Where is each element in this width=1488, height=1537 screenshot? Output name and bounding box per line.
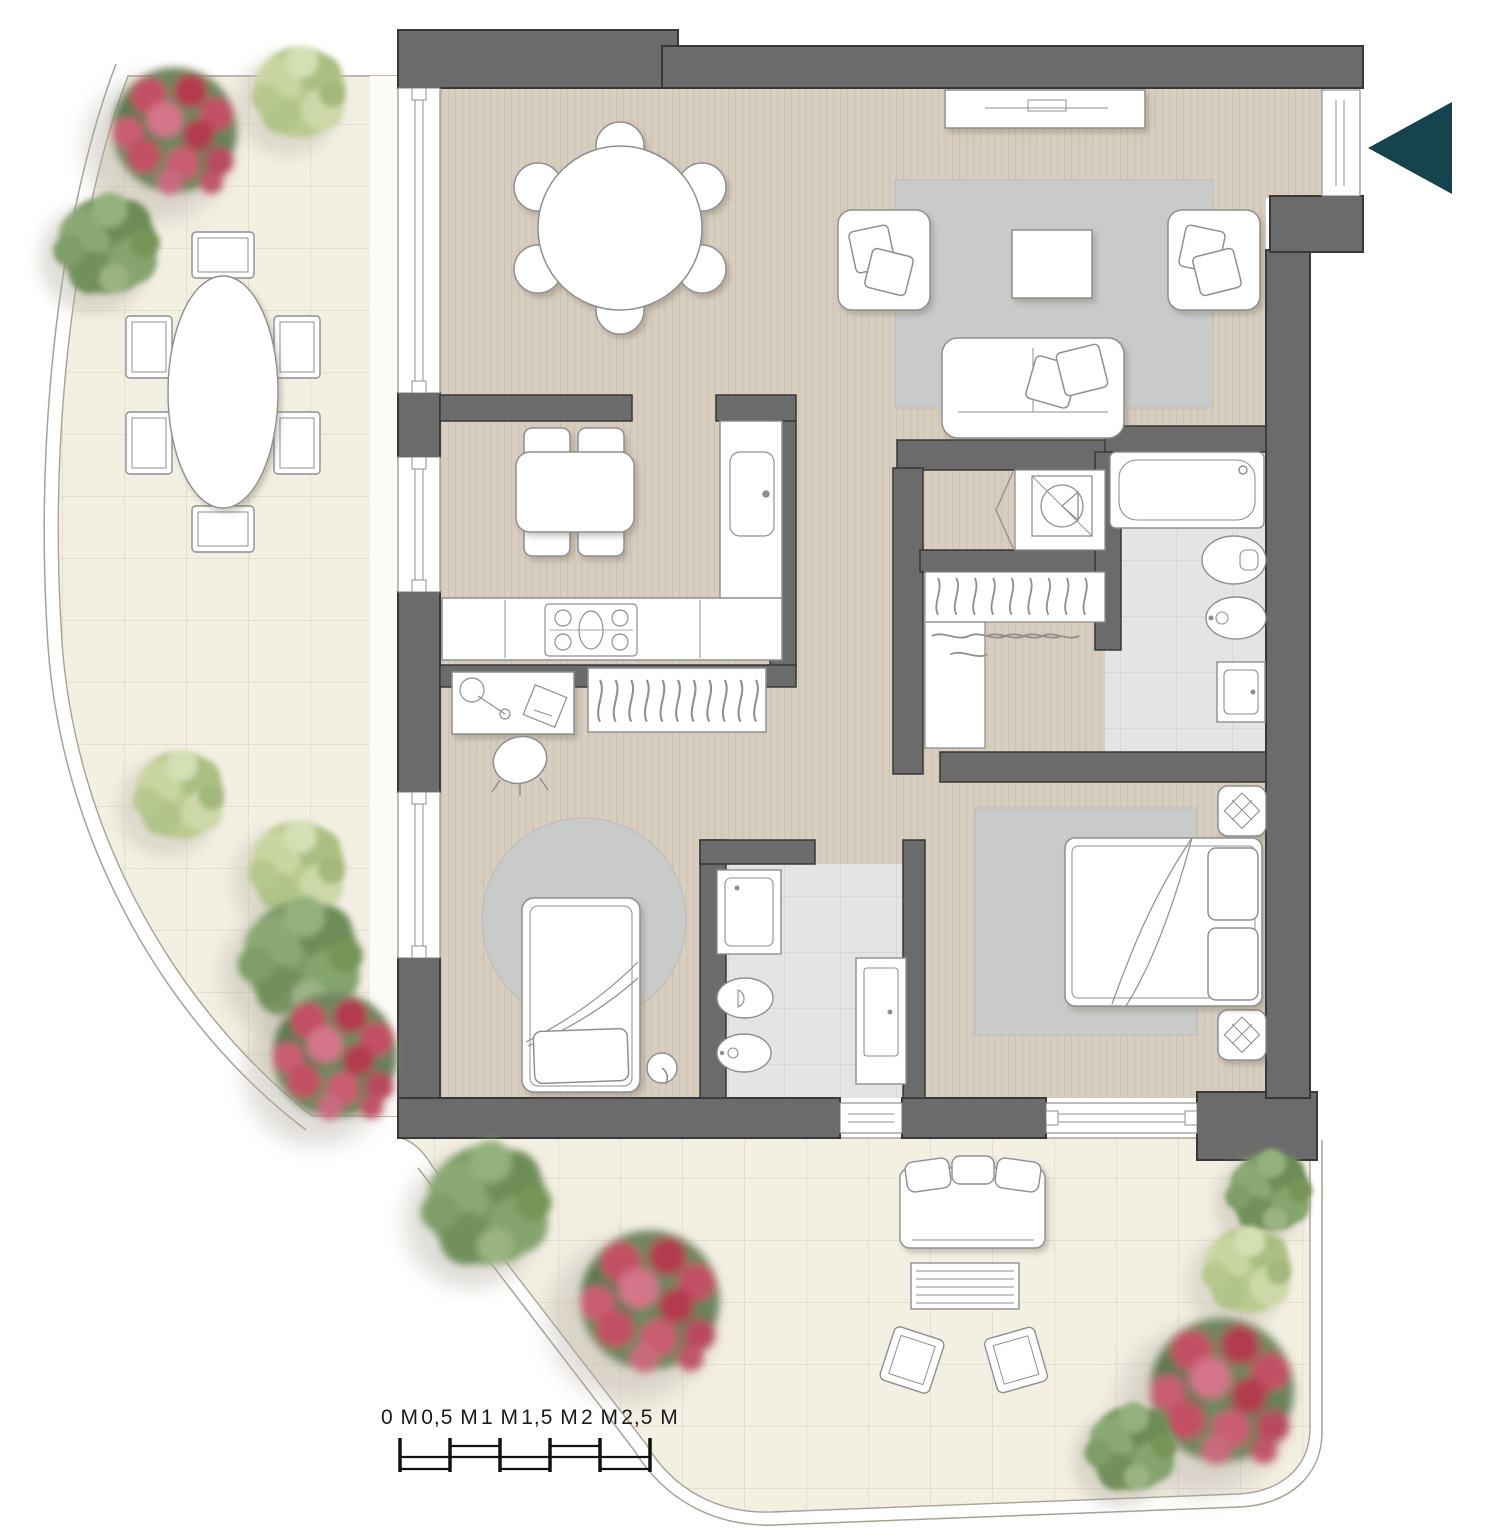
wall-bottom-b [902, 1098, 1046, 1138]
shower-icon [856, 958, 906, 1084]
wall-closet-top [920, 550, 1105, 572]
wall-entrance-block [1270, 196, 1363, 252]
scale-label: 0 M [381, 1406, 419, 1429]
floor-lamp-icon [647, 1053, 677, 1084]
bathtub-icon [1110, 452, 1264, 528]
wall-right [1266, 250, 1310, 1098]
outdoor-oval-table-icon [168, 276, 278, 508]
wall-left-pier-2 [398, 592, 440, 792]
terrace-wall-margin [370, 76, 398, 1116]
washbasin2-icon [717, 870, 781, 954]
tv-sideboard-icon [945, 90, 1145, 128]
window-bathroom2-icon [840, 1103, 902, 1133]
nightstand-bottom-icon [1218, 1010, 1266, 1060]
window-master-bedroom-icon [1046, 1103, 1197, 1133]
window-bedroom2-icon [398, 792, 440, 958]
toilet2-icon [717, 978, 773, 1018]
wardrobe-hangers-icon [588, 668, 766, 732]
wall-left-pier-1 [398, 393, 440, 457]
coffee-table-icon [1012, 230, 1092, 298]
scale-label: 1,5 M [521, 1406, 579, 1429]
wall-living-bottom [897, 440, 1125, 470]
armchair-left-icon [838, 210, 930, 310]
double-bed-icon [1065, 838, 1262, 1006]
washbasin-icon [1217, 662, 1265, 722]
toilet-icon [1202, 536, 1266, 584]
wall-bedroom-top [940, 752, 1266, 782]
window-dining-icon [398, 88, 440, 393]
outdoor-coffee-table-icon [911, 1263, 1019, 1309]
wall-bath2-top [700, 840, 815, 864]
wall-bottom-a [398, 1098, 840, 1138]
scale-bar: 0 M 0,5 M 1 M 1,5 M 2 M 2,5 M [381, 1406, 679, 1472]
sofa-icon [942, 338, 1124, 438]
scale-label: 2 M [581, 1406, 619, 1429]
bidet-icon [1206, 597, 1266, 639]
kitchen-table-icon [516, 452, 634, 532]
outdoor-sofa-icon [900, 1156, 1045, 1248]
single-bed-icon [522, 898, 640, 1092]
entrance-arrow-icon [1368, 102, 1452, 194]
scale-label: 0,5 M [421, 1406, 479, 1429]
bidet2-icon [717, 1034, 771, 1072]
wall-bottom-corner [1197, 1092, 1317, 1160]
scale-label: 1 M [481, 1406, 519, 1429]
wall-dining-kitchen-b [716, 395, 796, 421]
scale-bar-ruler [400, 1438, 650, 1472]
wall-dining-kitchen-a [440, 395, 632, 421]
scale-label: 2,5 M [621, 1406, 679, 1429]
nightstand-top-icon [1218, 786, 1266, 836]
wall-top-right [662, 46, 1363, 88]
armchair-right-icon [1168, 210, 1260, 310]
floor-plan-page: 0 M 0,5 M 1 M 1,5 M 2 M 2,5 M [0, 0, 1488, 1537]
entrance-door-icon [1322, 90, 1360, 196]
window-kitchen-icon [398, 457, 440, 592]
wall-top-left [398, 30, 678, 88]
floor-plan-svg: 0 M 0,5 M 1 M 1,5 M 2 M 2,5 M [0, 0, 1488, 1537]
wall-corridor [893, 468, 923, 774]
scale-bar-labels: 0 M 0,5 M 1 M 1,5 M 2 M 2,5 M [381, 1406, 679, 1429]
wall-bath1-top [1105, 426, 1266, 452]
desk-icon [452, 672, 574, 734]
